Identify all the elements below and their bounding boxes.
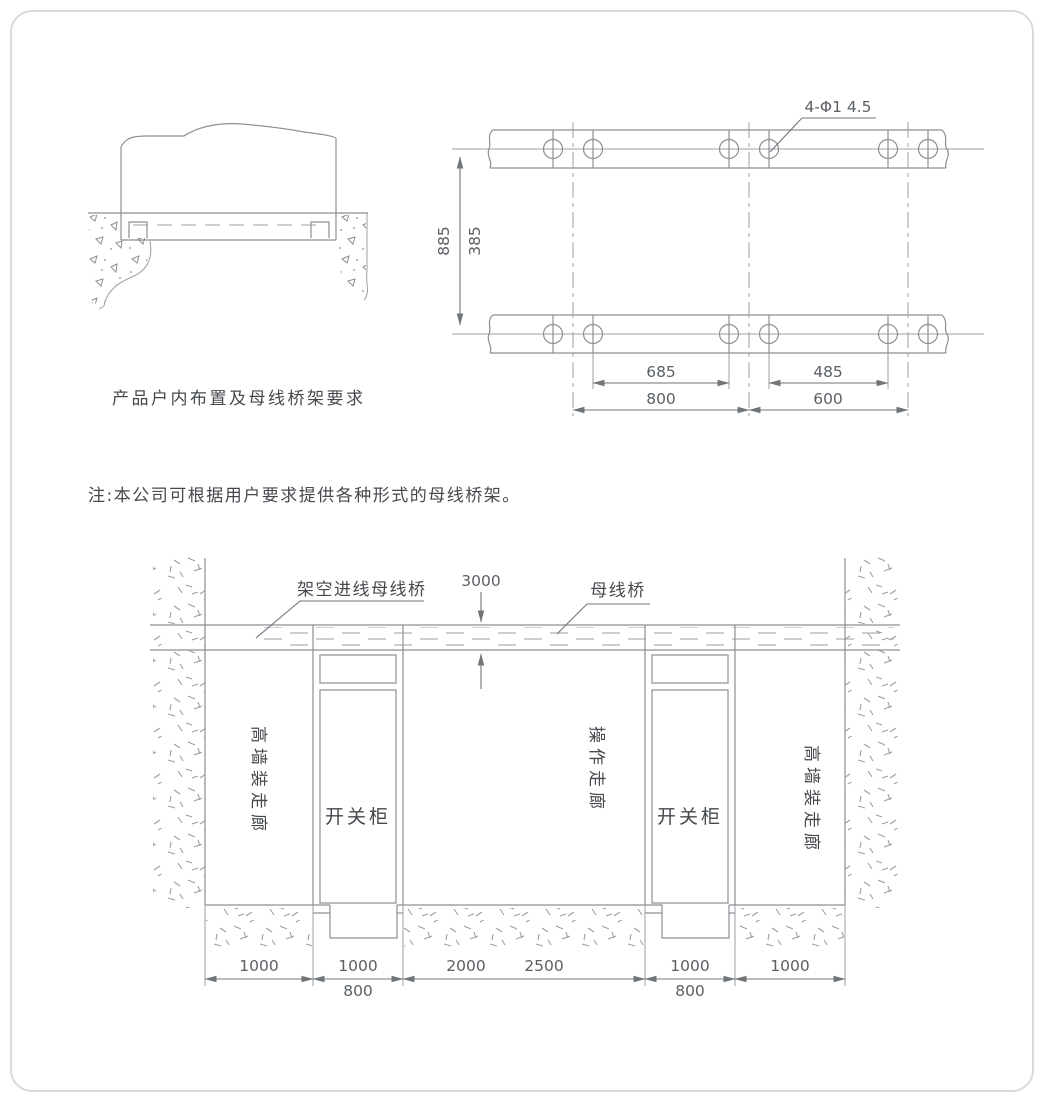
dim-operation-alt: 2500 (524, 957, 563, 975)
cabinet-break-outline (121, 124, 336, 147)
left-wall-hatch (153, 557, 205, 908)
hole-leader-line (770, 118, 876, 152)
busbar-label: 母线桥 (590, 581, 646, 601)
dim-800: 800 (646, 390, 676, 408)
concrete-hatch-left (89, 215, 149, 305)
technical-drawing-page: 产品户内布置及母线桥架要求 (0, 0, 1044, 1102)
switchgear-cabinet-left (313, 625, 403, 905)
left-cabinet-label: 开关柜 (325, 806, 391, 828)
dim-right-cabinet: 1000 (670, 957, 709, 975)
left-corridor-label: 高墙装走廊 (248, 726, 268, 836)
busbar-bridge-band (262, 627, 894, 648)
operation-corridor-label: 操作走廊 (586, 726, 606, 814)
dim-885: 885 (435, 226, 453, 256)
dim-685: 685 (646, 363, 676, 381)
floor-and-trenches (205, 905, 845, 950)
hole-callout-label: 4-Φ1 4.5 (804, 98, 871, 116)
dim-3000: 3000 (461, 572, 500, 590)
room-layout-drawing: 架空进线母线桥 母线桥 3000 高墙装走廊 操作走廊 高墙装走廊 开关柜 开关… (150, 557, 900, 1000)
right-cabinet-label: 开关柜 (657, 806, 723, 828)
dim-left-cabinet-alt: 800 (343, 982, 373, 1000)
channel-steel-right (311, 222, 329, 238)
mounting-holes (544, 130, 938, 353)
concrete-hatch-right (338, 215, 366, 299)
dim-right-corridor: 1000 (770, 957, 809, 975)
channel-steel-left (129, 222, 147, 238)
overhead-busbar-label: 架空进线母线桥 (297, 580, 427, 600)
dim-485: 485 (813, 363, 843, 381)
dim-left-cabinet: 1000 (338, 957, 377, 975)
plan-view-drawing: 4-Φ1 4.5 885 385 685 485 800 600 (435, 98, 984, 416)
drawing-canvas: 产品户内布置及母线桥架要求 (0, 0, 1044, 1102)
note-text: 注:本公司可根据用户要求提供各种形式的母线桥架。 (88, 486, 521, 506)
dim-385: 385 (466, 226, 484, 256)
dim-600: 600 (813, 390, 843, 408)
dim-left-corridor: 1000 (239, 957, 278, 975)
dim-operation: 2000 (446, 957, 485, 975)
right-corridor-label: 高墙装走廊 (801, 745, 821, 855)
switchgear-cabinet-right (645, 625, 735, 905)
bottom-dimensions: 1000 1000 800 2000 2500 1000 800 1000 (205, 957, 845, 1000)
right-wall-hatch (845, 557, 898, 908)
elevation-drawing: 产品户内布置及母线桥架要求 (88, 124, 368, 409)
dim-right-cabinet-alt: 800 (675, 982, 705, 1000)
elevation-caption: 产品户内布置及母线桥架要求 (112, 389, 366, 409)
